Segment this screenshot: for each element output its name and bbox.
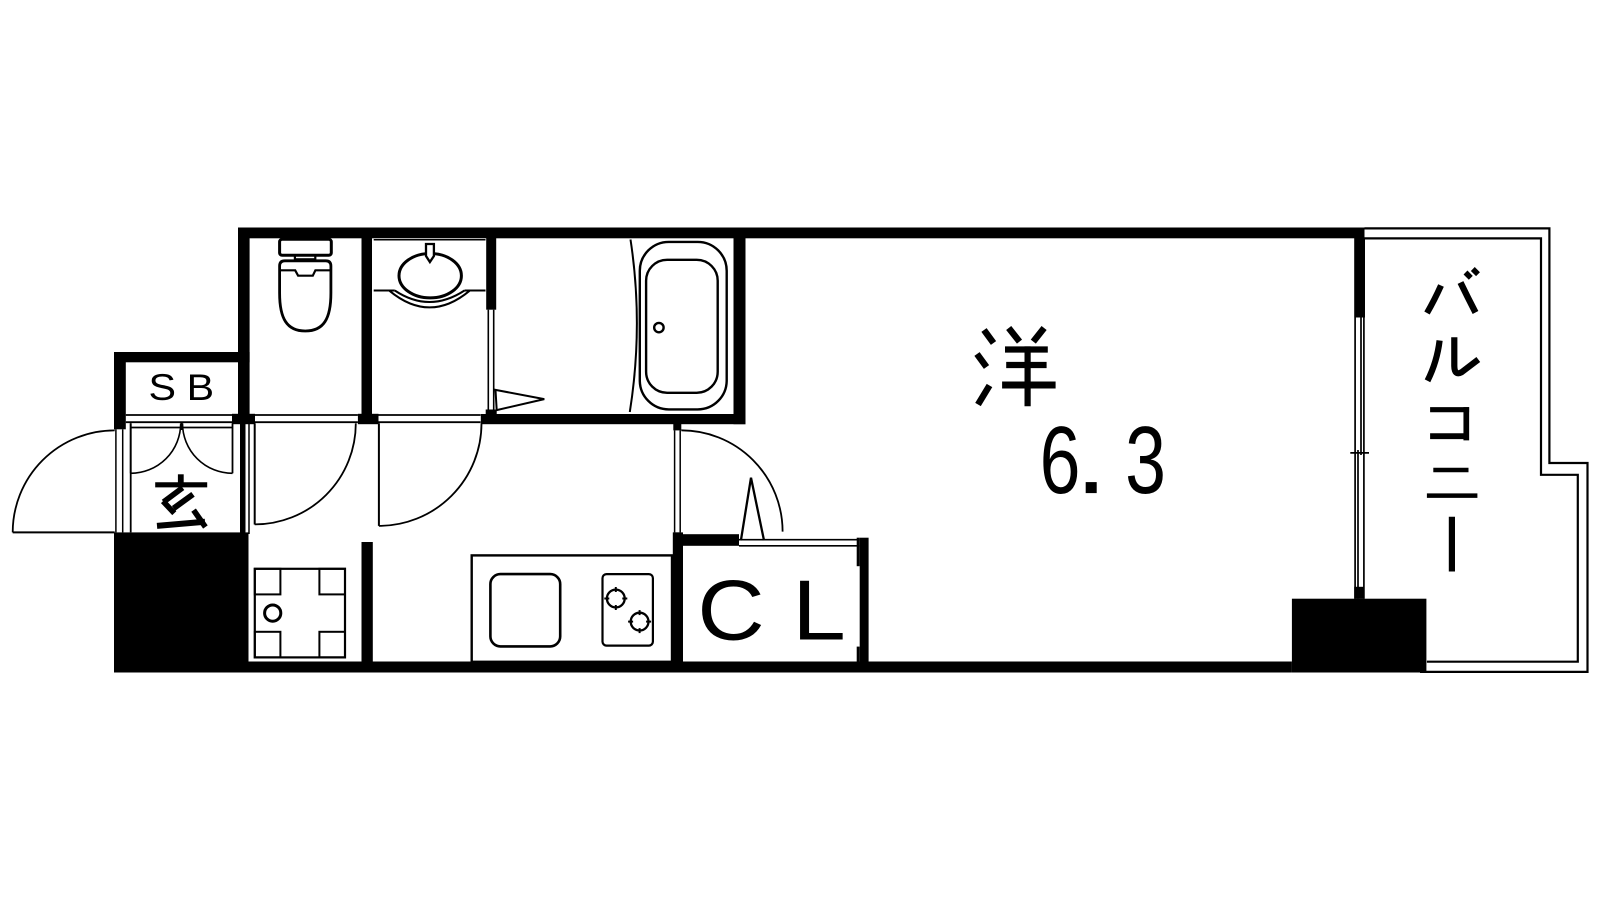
svg-text:6: 6 <box>1040 408 1081 515</box>
svg-text:L: L <box>792 563 846 659</box>
svg-text:3: 3 <box>1125 408 1166 515</box>
svg-text:S: S <box>148 367 176 409</box>
svg-text:B: B <box>187 367 215 409</box>
svg-text:C: C <box>697 562 764 658</box>
